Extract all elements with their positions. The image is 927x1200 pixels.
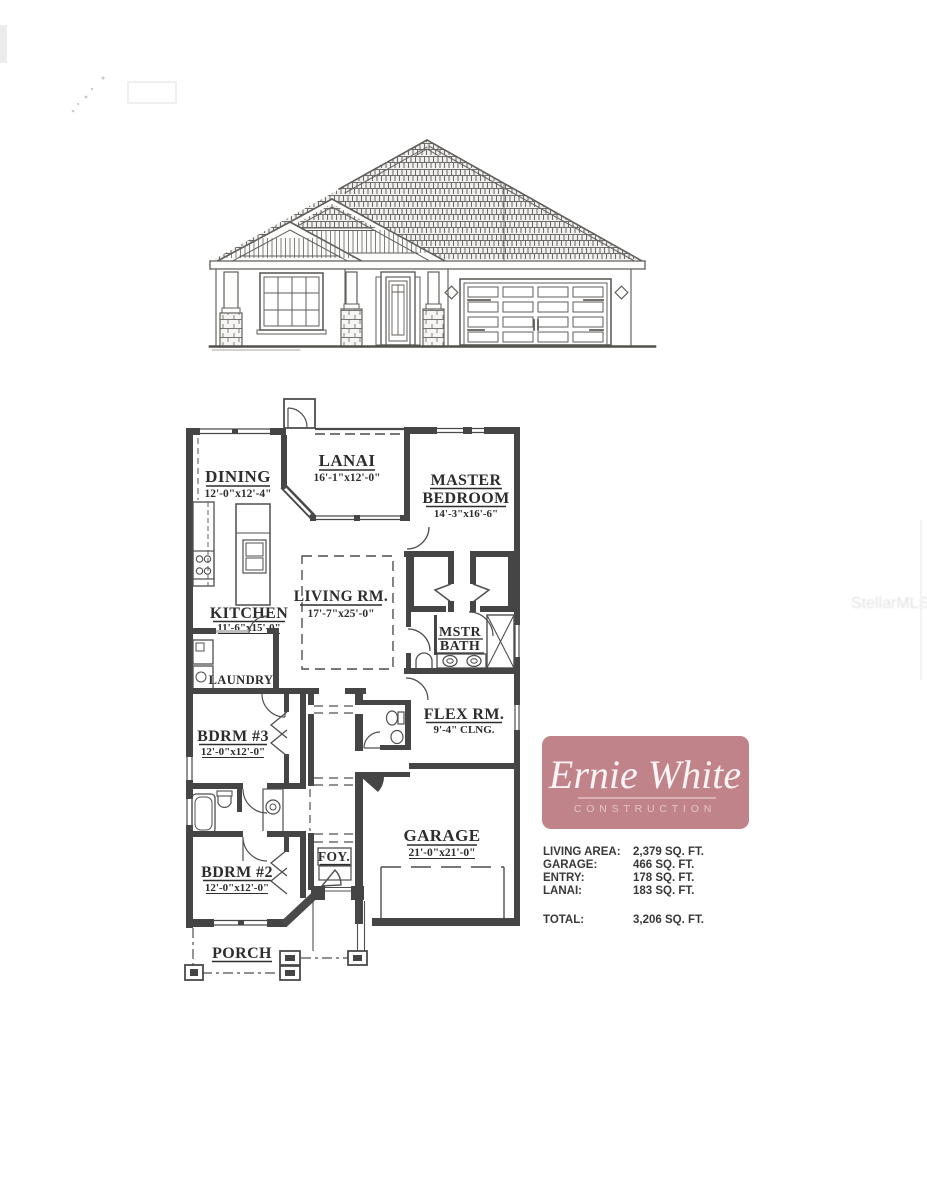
svg-text:BDRM #2: BDRM #2 bbox=[201, 864, 273, 881]
svg-text:21'-0"x21'-0": 21'-0"x21'-0" bbox=[408, 847, 475, 859]
svg-text:3,206 SQ. FT.: 3,206 SQ. FT. bbox=[633, 914, 704, 926]
svg-text:GARAGE: GARAGE bbox=[403, 826, 480, 845]
svg-text:12'-0"x12'-0": 12'-0"x12'-0" bbox=[205, 882, 269, 894]
svg-text:DINING: DINING bbox=[205, 467, 271, 486]
svg-text:14'-3"x16'-6": 14'-3"x16'-6" bbox=[434, 508, 498, 520]
svg-text:PORCH: PORCH bbox=[212, 945, 272, 962]
svg-text:LANAI:: LANAI: bbox=[543, 885, 582, 897]
svg-text:FOY.: FOY. bbox=[318, 849, 350, 864]
svg-text:LIVING AREA:: LIVING AREA: bbox=[543, 846, 621, 858]
svg-text:TOTAL:: TOTAL: bbox=[543, 914, 584, 926]
svg-text:KITCHEN: KITCHEN bbox=[210, 605, 288, 622]
svg-text:LIVING RM.: LIVING RM. bbox=[294, 588, 388, 605]
svg-text:GARAGE:: GARAGE: bbox=[543, 859, 597, 871]
svg-text:17'-7"x25'-0": 17'-7"x25'-0" bbox=[307, 608, 374, 620]
svg-text:9'-4" CLNG.: 9'-4" CLNG. bbox=[433, 724, 494, 736]
svg-text:466 SQ. FT.: 466 SQ. FT. bbox=[633, 859, 694, 871]
svg-text:BDRM #3: BDRM #3 bbox=[197, 728, 269, 745]
svg-text:12'-0"x12'-0": 12'-0"x12'-0" bbox=[201, 746, 265, 758]
svg-text:183 SQ. FT.: 183 SQ. FT. bbox=[633, 885, 694, 897]
svg-text:LAUNDRY: LAUNDRY bbox=[209, 673, 274, 687]
svg-text:16'-1"x12'-0": 16'-1"x12'-0" bbox=[313, 472, 380, 484]
svg-text:CONSTRUCTION: CONSTRUCTION bbox=[574, 803, 716, 815]
svg-text:MSTR: MSTR bbox=[439, 625, 482, 640]
svg-text:Ernie White: Ernie White bbox=[548, 752, 741, 797]
svg-text:MASTER: MASTER bbox=[431, 472, 502, 489]
svg-text:2,379 SQ. FT.: 2,379 SQ. FT. bbox=[633, 846, 704, 858]
svg-text:178 SQ. FT.: 178 SQ. FT. bbox=[633, 872, 694, 884]
svg-text:ENTRY:: ENTRY: bbox=[543, 872, 585, 884]
svg-text:StellarMLS: StellarMLS bbox=[851, 595, 927, 612]
svg-text:LANAI: LANAI bbox=[319, 451, 376, 470]
svg-text:BEDROOM: BEDROOM bbox=[422, 490, 509, 507]
svg-text:12'-0"x12'-4": 12'-0"x12'-4" bbox=[204, 488, 271, 500]
svg-text:BATH: BATH bbox=[440, 639, 480, 654]
svg-text:FLEX RM.: FLEX RM. bbox=[424, 706, 505, 723]
